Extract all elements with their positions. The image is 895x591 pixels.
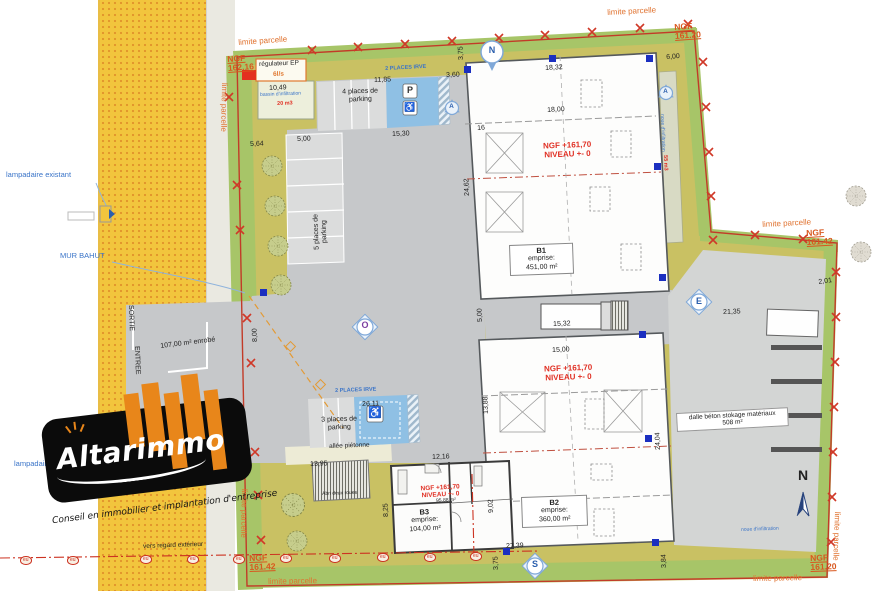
eu-marker: eu: [377, 553, 389, 562]
eu-marker: eu: [424, 553, 436, 562]
volume-note: 55 m3: [662, 155, 669, 171]
eu-marker: eu: [470, 552, 482, 561]
dimension-label: 107,00 m² enrobé: [160, 336, 216, 351]
dimension-label: 3,75: [458, 46, 467, 60]
site-plan: limite parcellelimite parcellelimite par…: [0, 0, 895, 591]
dimension-label: 6,00: [666, 53, 680, 62]
limite-parcelle-label: limite parcelle: [753, 573, 802, 583]
dimension-label: 16: [477, 125, 485, 133]
dimension-label: 27,39: [506, 542, 524, 551]
ngf-elevation-marker: NGF 161.20: [674, 21, 701, 41]
dimension-label: 5,00: [477, 308, 486, 322]
dimension-label: SORTIE: [126, 305, 135, 331]
plan-note: 95,88 m²: [436, 498, 456, 505]
eu-marker: eu: [67, 556, 79, 565]
section-marker-letter: A: [446, 103, 457, 110]
b1-area: 451,00 m²: [513, 263, 571, 274]
parking-icon-glyph: ♿: [403, 102, 417, 112]
dimension-label: 11,85: [374, 76, 391, 85]
dimension-label: 2,01: [818, 277, 833, 287]
building-b2-label: B2 emprise: 360,00 m²: [521, 495, 588, 528]
building-b3-label: B3 emprise: 104,00 m²: [394, 505, 455, 537]
north-arrow-letter: N: [795, 467, 811, 483]
dimension-label: 8,00: [252, 328, 261, 342]
dimension-label: 18,32: [545, 64, 563, 73]
parking-icon-glyph: P: [403, 85, 417, 95]
dimension-label: 18,00: [547, 106, 565, 115]
eu-marker: eu: [233, 555, 245, 564]
dimension-label: 3,84: [661, 554, 670, 568]
eu-marker: eu: [280, 554, 292, 563]
dimension-label: 5,64: [250, 141, 264, 150]
plan-note: allée piétonne: [329, 442, 370, 451]
dimension-label: ENTREE: [132, 346, 141, 375]
logo-rays-icon: [73, 422, 76, 430]
limite-parcelle-label: limite parcelle: [268, 576, 317, 586]
dimension-label: 5,00: [297, 136, 311, 145]
ngf-elevation-marker: NGF 161.20: [810, 553, 837, 572]
limite-parcelle-label: limite parcelle: [607, 5, 656, 17]
compass-badge-letter: S: [529, 559, 541, 569]
section-marker-letter: A: [660, 88, 671, 95]
plan-note: 4 places de parking: [333, 87, 388, 105]
b3-area: 104,00 m²: [397, 524, 453, 536]
blue-annotation: MUR BAHUT: [60, 252, 105, 261]
ngf-elevation-marker: NGF 161.42: [249, 553, 276, 572]
logo-rays-icon: [80, 424, 85, 432]
dimension-label: 21,35: [723, 308, 741, 317]
dimension-label: 24,62: [463, 178, 472, 196]
blue-annotation: noue d'infiltration: [658, 114, 665, 152]
b2-area: 360,00 m²: [525, 515, 585, 526]
parking-icon-glyph: ♿: [367, 407, 383, 420]
dimension-label: 24,04: [654, 432, 663, 450]
plan-note: 5 places de parking: [312, 203, 330, 260]
blue-annotation: noue d'infiltration: [741, 527, 779, 534]
building-level-note: NGF +161,70 NIVEAU +- 0: [528, 362, 609, 383]
eu-marker: eu: [20, 556, 32, 565]
ngf-elevation-marker: NGF 161.42: [806, 228, 833, 247]
building-b1-label: B1 emprise: 451,00 m²: [509, 243, 574, 276]
dimension-label: 15,32: [553, 320, 571, 329]
eu-marker: eu: [187, 555, 199, 564]
eu-marker: eu: [140, 555, 152, 564]
flow-note: 6l/s: [273, 71, 284, 79]
eu-marker: eu: [329, 554, 341, 563]
ngf-elevation-marker: NGF 162.16: [227, 53, 254, 73]
dalle-beton-label: dalle béton stokage matériaux 508 m²: [676, 407, 789, 432]
plan-note: vers regard extérieur: [143, 541, 203, 551]
dimension-label: 8,25: [383, 503, 392, 517]
blue-annotation: bassin d'infiltration: [260, 92, 301, 99]
dimension-label: 12,16: [432, 453, 450, 462]
blue-annotation: 2 PLACES IRVE: [385, 64, 426, 72]
limite-parcelle-label: limite parcelle: [762, 217, 811, 229]
dimension-label: 3,75: [493, 556, 502, 570]
dimension-label: 15,00: [552, 346, 570, 355]
logo-rays-icon: [65, 426, 71, 434]
building-level-note: NGF +161,70 NIVEAU +- 0: [527, 139, 608, 160]
volume-note: 20 m3: [277, 100, 293, 107]
blue-annotation: lampadaire existant: [6, 171, 71, 180]
limite-parcelle-label: limite parcelle: [238, 35, 287, 48]
plan-note: 3 places de parking: [312, 415, 367, 433]
dimension-label: 13,88: [482, 396, 491, 414]
compass-badge-letter: N: [486, 45, 498, 55]
plan-note: régulateur EP: [259, 60, 299, 69]
blue-annotation: 2 PLACES IRVE: [335, 387, 376, 395]
compass-badge-letter: E: [693, 296, 705, 306]
compass-badge-letter: O: [359, 320, 371, 330]
dimension-label: 15,30: [392, 130, 410, 139]
limite-parcelle-label: limite parcelle: [219, 83, 229, 132]
dimension-label: 13,95: [310, 460, 328, 469]
dimension-label: 9,02: [488, 499, 497, 513]
plan-note: Abri deux roues: [322, 491, 357, 498]
dimension-label: 3,60: [446, 72, 460, 81]
